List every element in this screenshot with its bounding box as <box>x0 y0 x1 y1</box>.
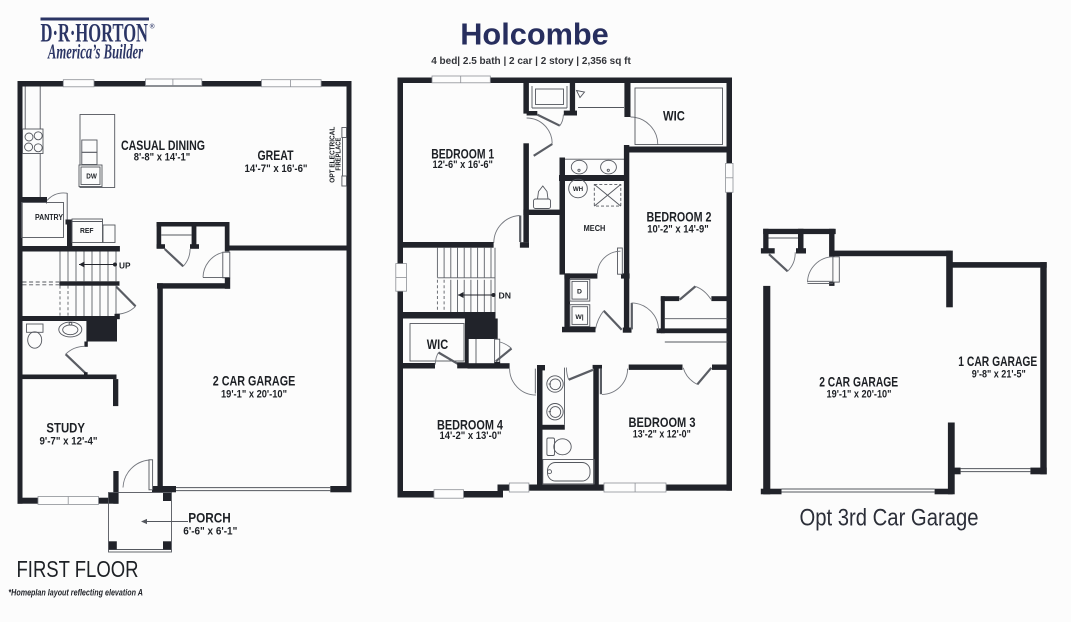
svg-text:8'-8" x 14'-1": 8'-8" x 14'-1" <box>134 151 191 163</box>
svg-text:6'-6" x 6'-1": 6'-6" x 6'-1" <box>183 526 237 538</box>
svg-text:9'-8" x 21'-5": 9'-8" x 21'-5" <box>972 368 1026 380</box>
svg-text:WIC: WIC <box>427 337 448 352</box>
svg-text:MECH: MECH <box>584 223 606 233</box>
svg-text:Opt 3rd Car Garage: Opt 3rd Car Garage <box>800 505 979 532</box>
svg-text:America’s Builder: America’s Builder <box>47 39 144 63</box>
svg-text:13'-2" x 12'-0": 13'-2" x 12'-0" <box>633 428 691 440</box>
svg-text:19'-1" x 20'-10": 19'-1" x 20'-10" <box>827 388 892 400</box>
svg-text:FIREPLACE: FIREPLACE <box>336 137 343 170</box>
svg-text:WH: WH <box>573 186 584 193</box>
svg-text:9'-7" x 12'-4": 9'-7" x 12'-4" <box>40 435 98 447</box>
svg-text:PANTRY: PANTRY <box>35 213 64 222</box>
svg-text:14'-2" x 13'-0": 14'-2" x 13'-0" <box>440 430 502 442</box>
svg-text:12'-6" x 16'-6": 12'-6" x 16'-6" <box>432 159 493 171</box>
svg-text:FIRST FLOOR: FIRST FLOOR <box>17 556 139 582</box>
svg-text:D: D <box>577 289 582 296</box>
svg-text:®: ® <box>150 23 156 31</box>
svg-text:PORCH: PORCH <box>188 510 231 525</box>
svg-text:2 CAR GARAGE: 2 CAR GARAGE <box>819 374 898 389</box>
svg-text:REF: REF <box>80 226 94 235</box>
svg-text:WIC: WIC <box>663 108 685 123</box>
svg-text:19'-1" x 20'-10": 19'-1" x 20'-10" <box>221 389 287 401</box>
svg-text:STUDY: STUDY <box>46 421 85 436</box>
svg-text:GREAT: GREAT <box>258 148 294 163</box>
svg-text:*Homeplan layout reflecting el: *Homeplan layout reflecting elevation A <box>8 587 143 597</box>
svg-text:DN: DN <box>499 291 512 301</box>
svg-text:DW: DW <box>86 174 97 181</box>
svg-text:10'-2" x 14'-9": 10'-2" x 14'-9" <box>647 224 709 236</box>
svg-text:1 CAR GARAGE: 1 CAR GARAGE <box>958 354 1037 369</box>
svg-text:14'-7" x 16'-6": 14'-7" x 16'-6" <box>245 163 308 175</box>
svg-text:2 CAR GARAGE: 2 CAR GARAGE <box>213 373 296 388</box>
svg-text:BEDROOM 2: BEDROOM 2 <box>647 209 712 224</box>
svg-text:W|: W| <box>575 314 583 321</box>
svg-text:Holcombe: Holcombe <box>460 17 609 51</box>
svg-text:UP: UP <box>119 260 131 270</box>
svg-text:4 bed| 2.5 bath | 2 car |: 4 bed| 2.5 bath | 2 car | 2 story | 2,35… <box>431 56 631 67</box>
